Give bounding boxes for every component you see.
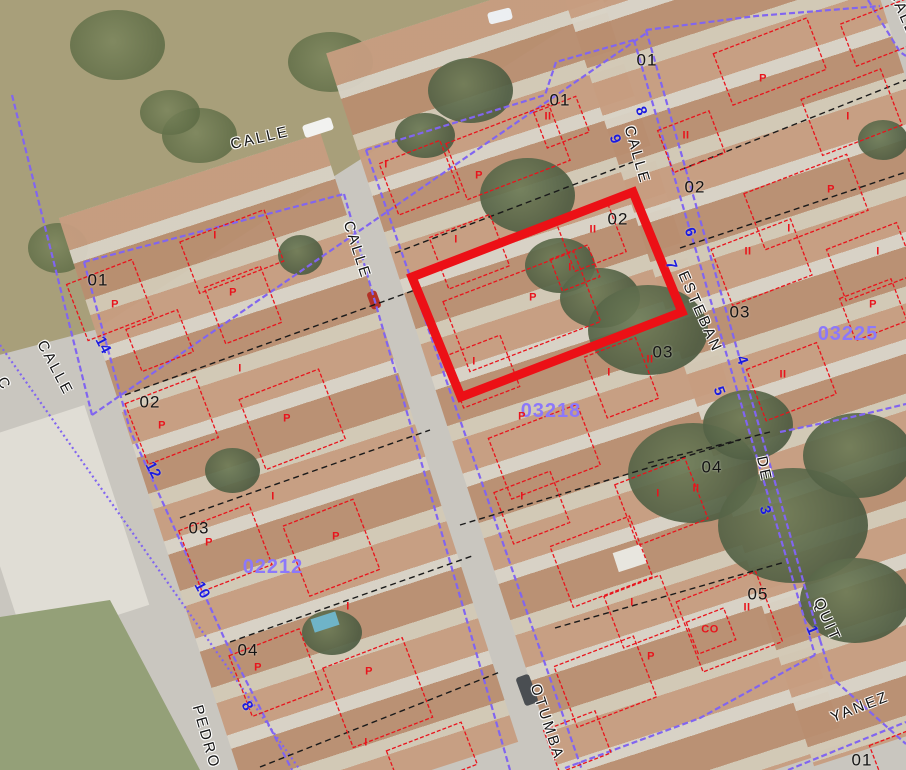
construction-type-label: P [158, 421, 166, 432]
construction-type-label: CO [701, 625, 719, 636]
parcel-number-label: 02 [608, 211, 629, 228]
construction-type-label: P [205, 538, 213, 549]
construction-type-label: P [759, 74, 767, 85]
construction-type-label: II [589, 225, 596, 236]
street-name-label: PEDRO [190, 703, 223, 770]
house-number-label: 1 [803, 623, 820, 636]
parcel-number-label: 03 [189, 520, 210, 537]
construction-type-label: P [111, 300, 119, 311]
construction-type-label: I [787, 224, 791, 235]
street-name-label: C [0, 375, 14, 394]
street-name-label: CALLE [34, 338, 75, 398]
parcel-number-label: 04 [702, 459, 723, 476]
house-number-label: 12 [142, 459, 163, 481]
parcel-number-label: 02 [140, 394, 161, 411]
construction-type-label: I [846, 112, 850, 123]
construction-type-label: P [475, 171, 483, 182]
parcel-number-label: 01 [88, 272, 109, 289]
construction-type-label: P [827, 185, 835, 196]
construction-type-label: I [364, 738, 368, 749]
street-name-label: CALLE [229, 124, 291, 152]
construction-type-label: I [568, 263, 572, 274]
house-number-label: 8 [633, 105, 650, 118]
house-number-label: 7 [663, 259, 680, 272]
construction-type-label: II [744, 247, 751, 258]
construction-type-label: P [518, 412, 526, 423]
parcel-number-label: 02 [685, 179, 706, 196]
construction-type-label: I [630, 598, 634, 609]
street-name-label: ESTEBAN [675, 269, 724, 355]
street-name-label: CALLE [622, 124, 653, 186]
construction-type-label: I [454, 235, 458, 246]
construction-type-label: P [283, 414, 291, 425]
construction-type-label: P [254, 663, 262, 674]
construction-type-label: P [647, 652, 655, 663]
construction-type-label: I [346, 602, 350, 613]
house-number-label: 14 [92, 334, 113, 356]
construction-type-label: II [743, 603, 750, 614]
construction-type-label: I [607, 368, 611, 379]
cadastral-map-canvas: CALLECALLECALLECCALLEESTEBANDEOTUMBAPEDR… [0, 0, 906, 770]
construction-type-label: I [238, 364, 242, 375]
construction-type-label: II [692, 484, 699, 495]
parcel-number-label: 03 [730, 304, 751, 321]
parcel-number-label: 01 [852, 752, 873, 769]
construction-type-label: II [779, 370, 786, 381]
construction-type-label: I [213, 231, 217, 242]
construction-type-label: II [544, 112, 551, 123]
parcel-number-label: 03 [653, 344, 674, 361]
construction-type-label: P [869, 300, 877, 311]
street-name-label: CALLE [886, 0, 906, 48]
construction-type-label: P [332, 532, 340, 543]
house-number-label: 8 [238, 699, 255, 713]
block-number-label: 03225 [818, 324, 879, 344]
construction-type-label: P [529, 293, 537, 304]
construction-type-label: II [682, 131, 689, 142]
house-number-label: 3 [757, 504, 774, 516]
house-number-label: 9 [607, 133, 624, 146]
street-name-label: QUIT [811, 596, 843, 644]
construction-type-label: I [876, 247, 880, 258]
construction-type-label: I [520, 492, 524, 503]
street-name-label: CALLE [341, 219, 374, 281]
street-name-label: YANEZ [829, 689, 892, 725]
parcel-number-label: 05 [748, 586, 769, 603]
block-number-label: 03218 [521, 401, 582, 421]
house-number-label: 5 [711, 385, 728, 398]
house-number-label: 10 [191, 579, 212, 601]
street-name-label: OTUMBA [528, 682, 567, 762]
construction-type-label: II [646, 355, 653, 366]
construction-type-label: P [365, 667, 373, 678]
map-labels-layer: CALLECALLECALLECCALLEESTEBANDEOTUMBAPEDR… [0, 0, 906, 770]
construction-type-label: I [656, 489, 660, 500]
house-number-label: 4 [734, 354, 751, 367]
construction-type-label: P [229, 288, 237, 299]
parcel-number-label: 01 [550, 92, 571, 109]
street-name-label: DE [754, 455, 774, 483]
parcel-number-label: 01 [637, 52, 658, 69]
construction-type-label: I [472, 357, 476, 368]
construction-type-label: I [271, 492, 275, 503]
parcel-number-label: 04 [238, 642, 259, 659]
construction-type-label: I [384, 160, 388, 171]
block-number-label: 02212 [243, 557, 304, 577]
house-number-label: 6 [682, 226, 699, 239]
